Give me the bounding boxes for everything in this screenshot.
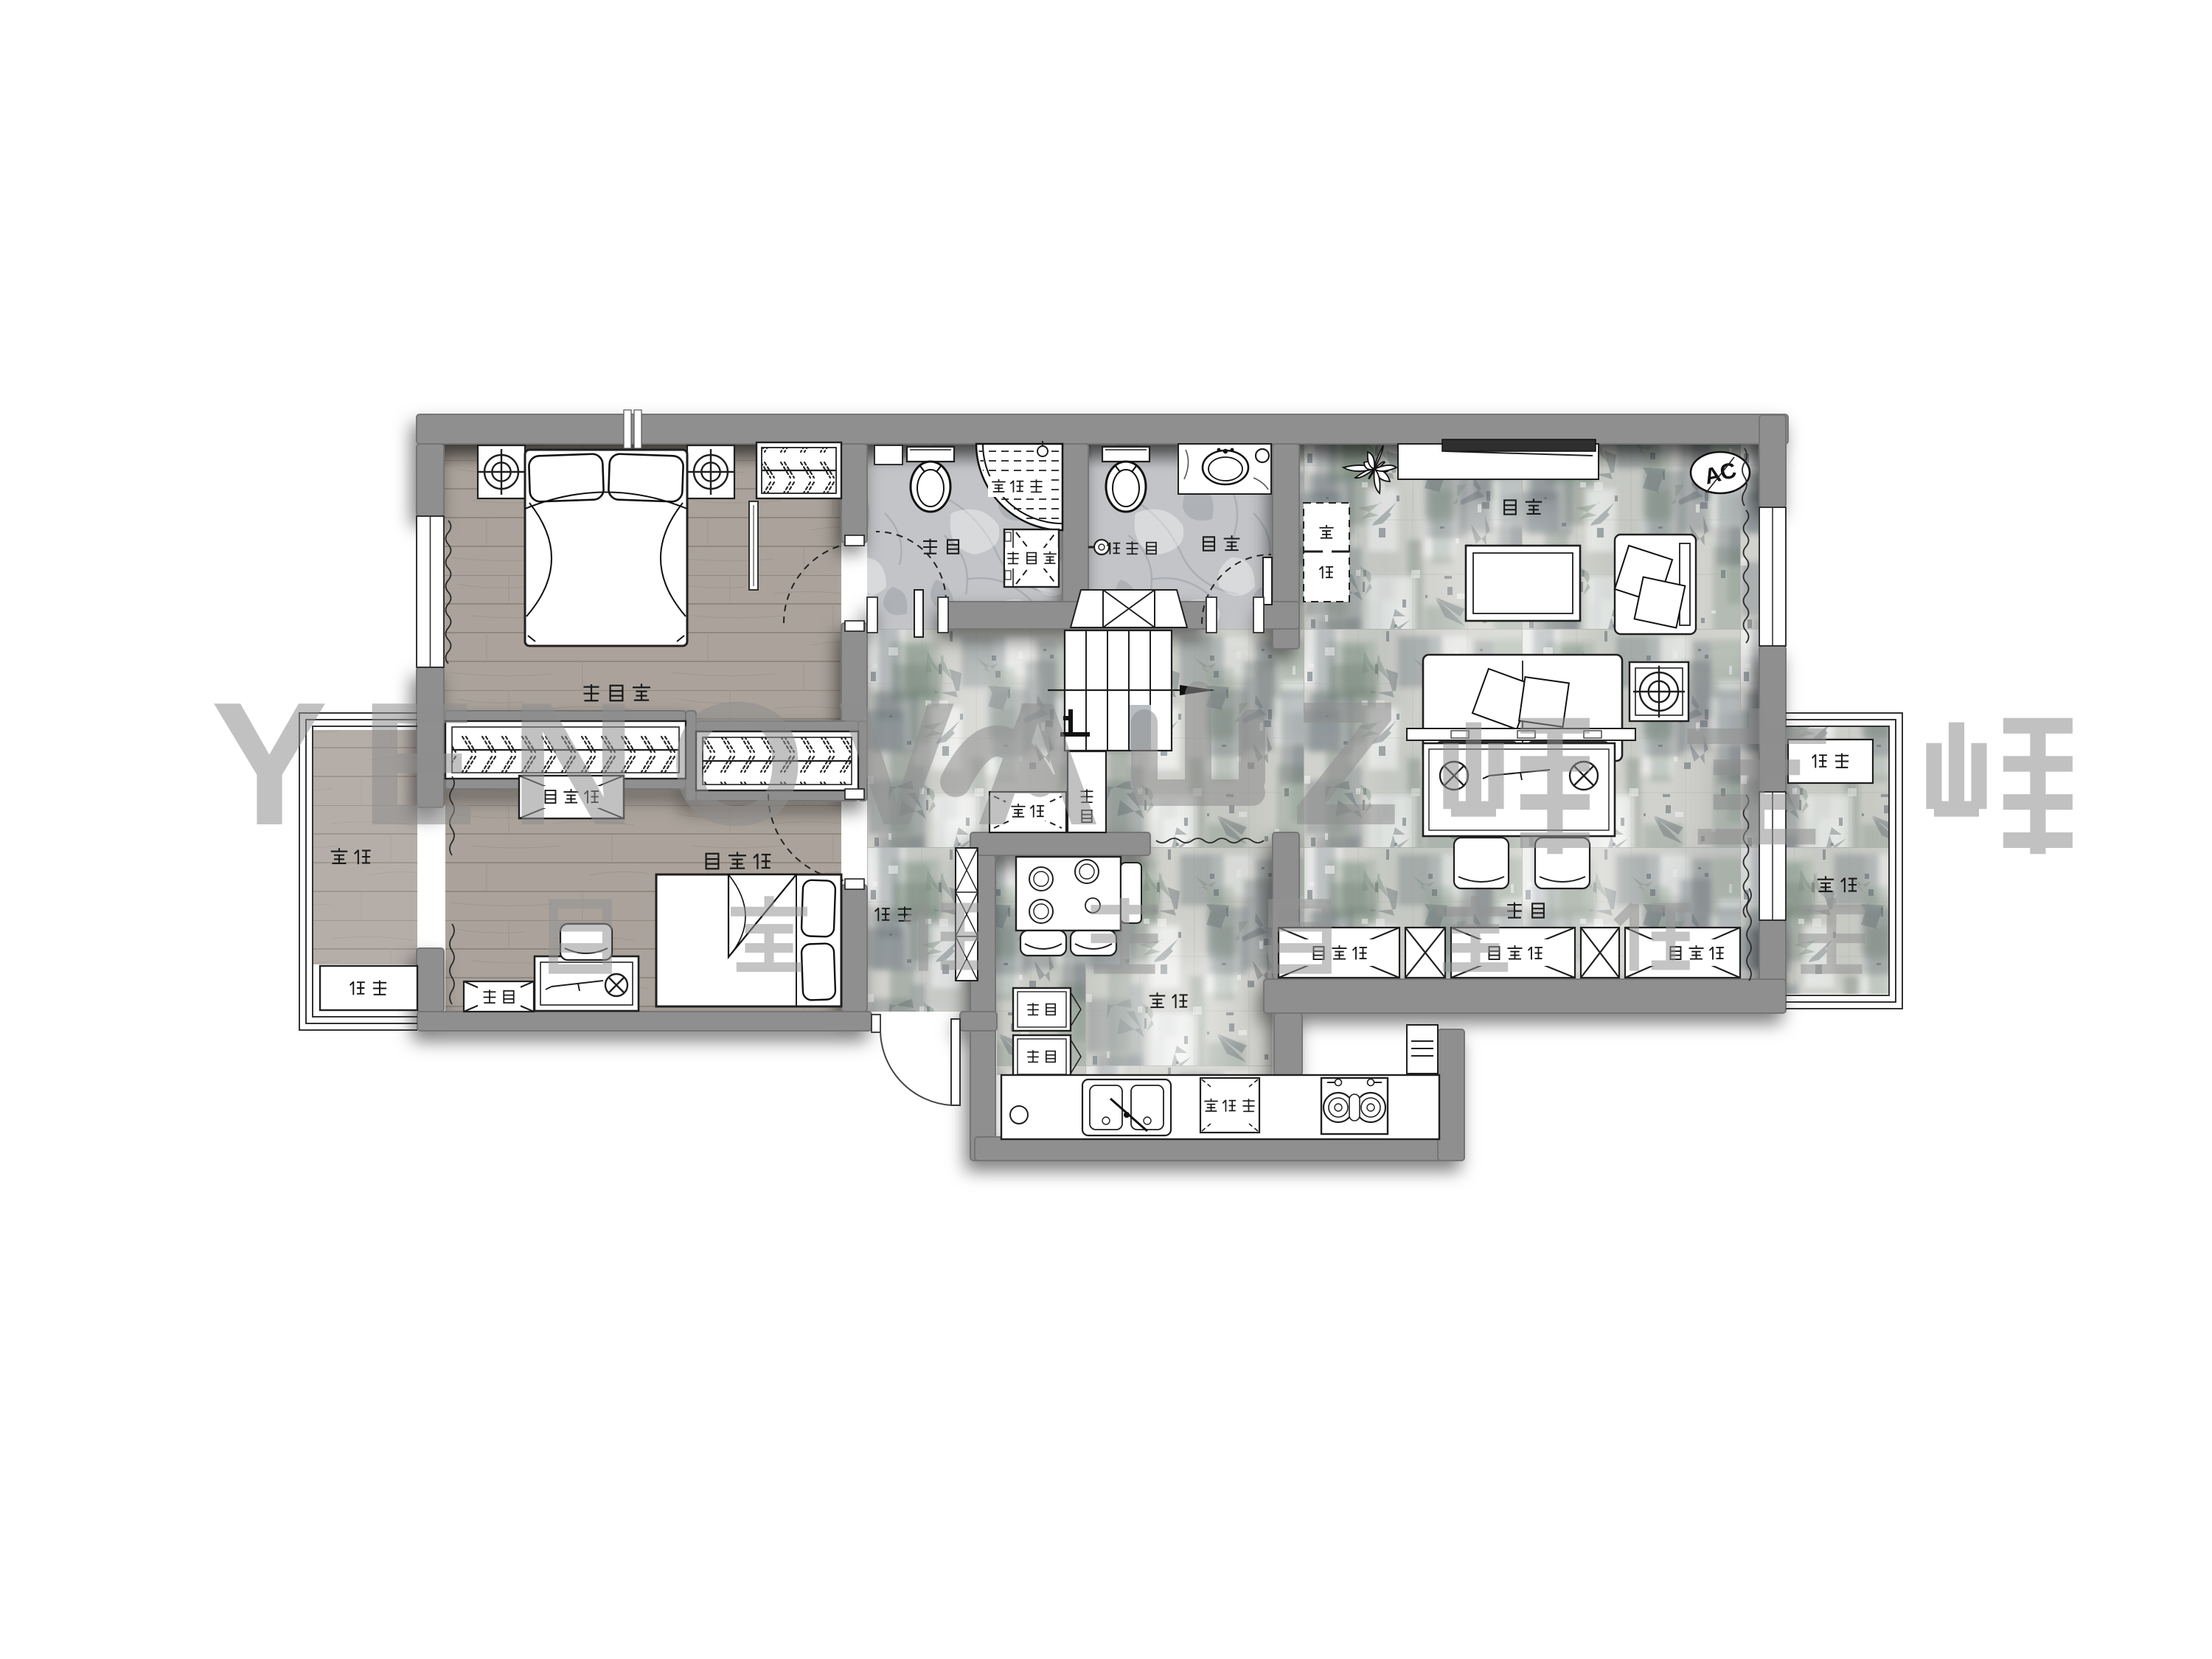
svg-text:YENOVA: YENOVA (211, 667, 1133, 862)
svg-text:Z: Z (1292, 664, 1400, 862)
